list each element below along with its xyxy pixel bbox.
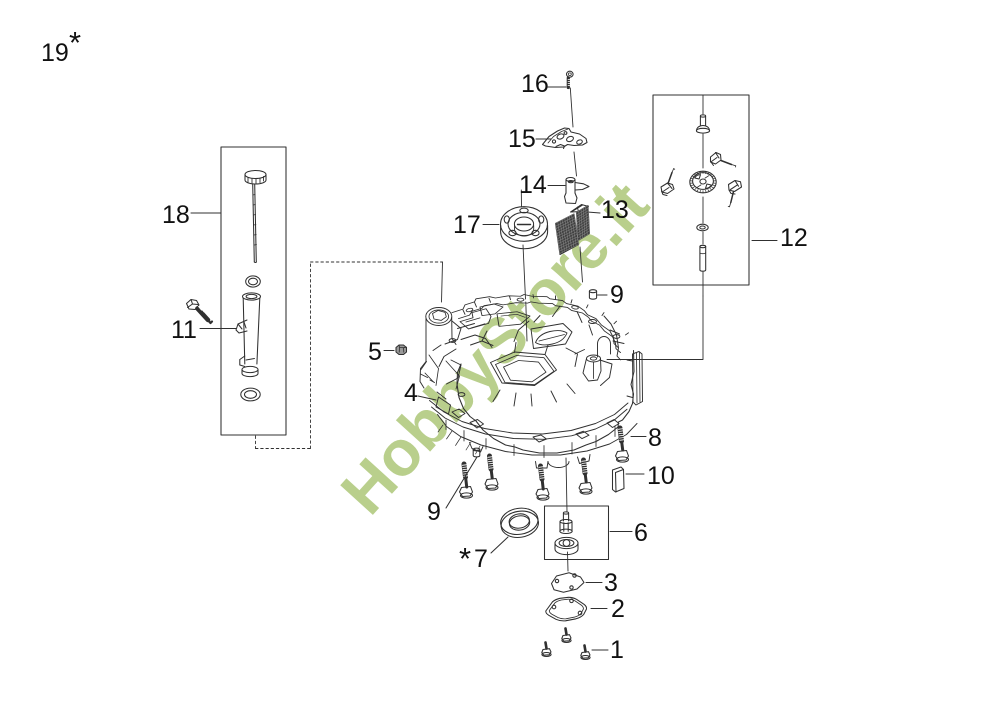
svg-text:13: 13 <box>601 196 629 224</box>
svg-text:12: 12 <box>780 224 808 252</box>
svg-text:10: 10 <box>647 462 675 490</box>
svg-text:3: 3 <box>604 569 618 597</box>
svg-text:7: 7 <box>474 545 488 573</box>
svg-text:9: 9 <box>610 281 624 309</box>
svg-text:18: 18 <box>162 201 190 229</box>
svg-text:17: 17 <box>453 211 481 239</box>
svg-text:4: 4 <box>404 379 418 407</box>
svg-text:11: 11 <box>171 316 197 344</box>
svg-text:2: 2 <box>611 595 625 623</box>
svg-text:16: 16 <box>521 70 549 98</box>
svg-text:*: * <box>459 541 471 576</box>
svg-text:9: 9 <box>427 498 441 526</box>
svg-text:14: 14 <box>519 171 547 199</box>
svg-text:19: 19 <box>41 39 69 67</box>
svg-text:1: 1 <box>610 636 624 664</box>
svg-text:*: * <box>69 25 81 60</box>
svg-text:8: 8 <box>648 424 662 452</box>
svg-text:5: 5 <box>368 338 382 366</box>
svg-text:15: 15 <box>508 125 536 153</box>
svg-text:6: 6 <box>634 519 648 547</box>
